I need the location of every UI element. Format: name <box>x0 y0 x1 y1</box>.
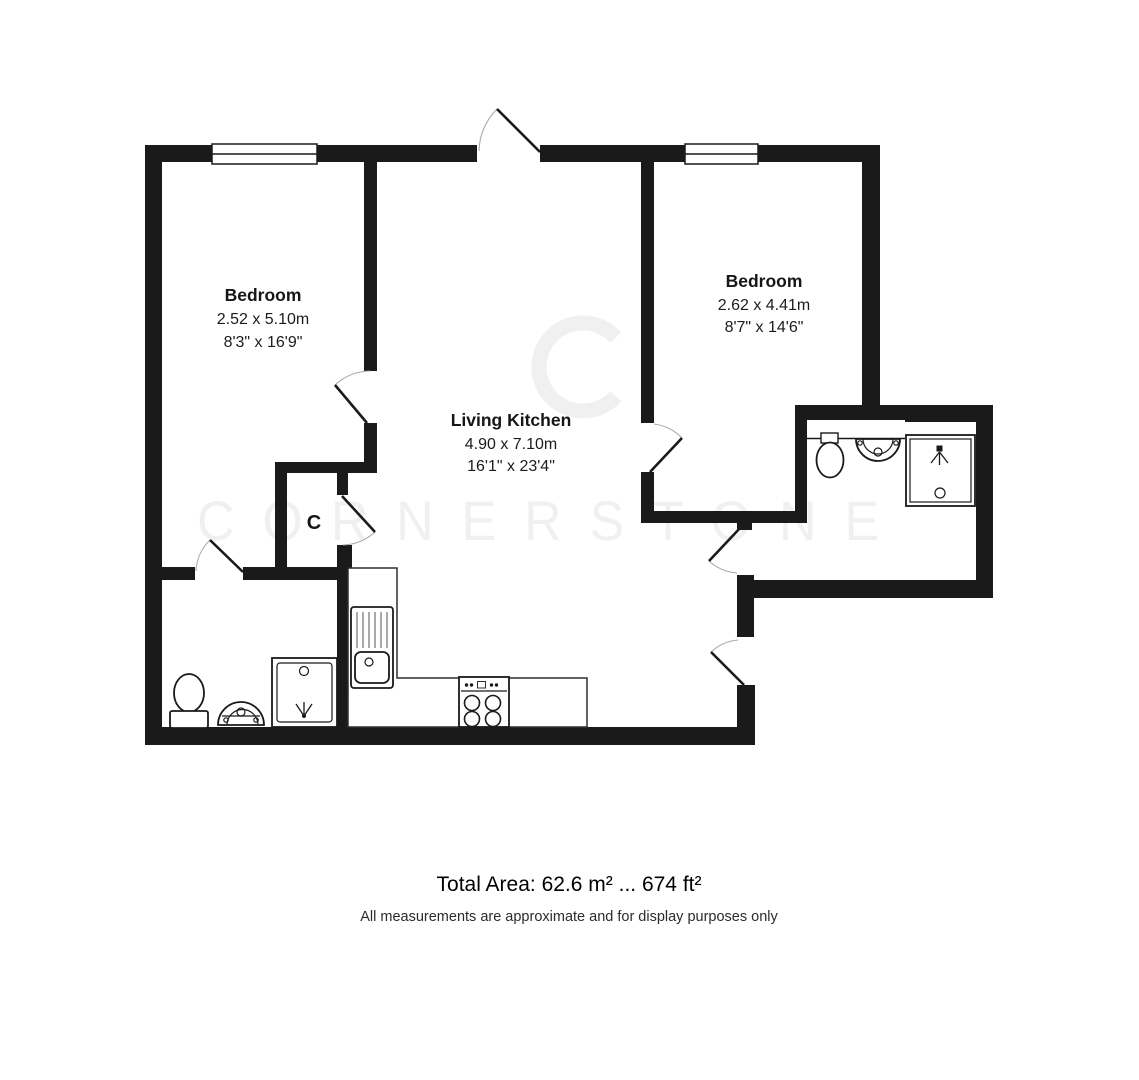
wall-closet-top <box>275 462 375 473</box>
total-area-text: Total Area: 62.6 m² ... 674 ft² <box>437 873 702 896</box>
wall-right-bedroom2 <box>862 145 880 407</box>
wall-ensuite-bottom <box>753 580 993 598</box>
wall-bed1-living-upper <box>364 162 377 371</box>
wall-hall-stub-lower <box>737 685 755 745</box>
window-bedroom1 <box>212 144 317 164</box>
hob-icon <box>459 677 509 727</box>
disclaimer-text: All measurements are approximate and for… <box>360 909 778 925</box>
wall-bathroom-top-right <box>243 567 348 580</box>
closet-label: C <box>307 512 321 534</box>
living-kitchen-metric: 4.90 x 7.10m <box>465 436 558 453</box>
wall-closet-left <box>275 462 287 578</box>
wall-ensuite-top <box>795 405 993 422</box>
kitchen-sink-icon <box>351 607 393 688</box>
ensuite-toilet-icon <box>817 433 844 478</box>
brand-logo-c-icon <box>539 323 616 411</box>
kitchen-fixtures <box>348 568 587 727</box>
ensuite-basin-icon <box>856 439 900 461</box>
shower-tray-icon <box>272 658 337 727</box>
bedroom1-imperial: 8'3" x 16'9" <box>224 334 303 351</box>
bedroom2-metric: 2.62 x 4.41m <box>718 297 811 314</box>
wall-bed2-living-upper <box>641 162 654 423</box>
bedroom2-imperial: 8'7" x 14'6" <box>725 319 804 336</box>
wall-closet-right-stub <box>337 473 348 495</box>
basin-icon <box>218 702 264 725</box>
floorplan-svg: CORNERSTONE <box>0 0 1139 1080</box>
doors <box>196 109 744 685</box>
bedroom1-door <box>335 371 370 423</box>
wall-ensuite-left <box>795 405 807 511</box>
floorplan-page: CORNERSTONE <box>0 0 1139 1080</box>
ensuite-shower-icon <box>906 435 975 506</box>
wall-bed2-bottom <box>641 511 807 523</box>
entry-door <box>479 109 540 152</box>
bedroom1-name: Bedroom <box>225 285 302 305</box>
wall-hall-stub-upper <box>737 575 754 637</box>
bedroom2-door <box>650 424 682 472</box>
footer: Total Area: 62.6 m² ... 674 ft² All meas… <box>360 873 778 925</box>
wall-left <box>145 145 162 745</box>
wall-bottom <box>145 727 755 745</box>
toilet-icon <box>170 674 208 728</box>
wall-bathroom-top-left <box>158 567 195 580</box>
hall-door-lower <box>711 640 744 685</box>
bathroom-fixtures <box>170 658 337 728</box>
bedroom2-name: Bedroom <box>726 271 803 291</box>
window-bedroom2 <box>685 144 758 164</box>
wall-ensuite-right <box>976 405 993 598</box>
bedroom1-metric: 2.52 x 5.10m <box>217 311 310 328</box>
living-kitchen-name: Living Kitchen <box>451 410 572 430</box>
living-kitchen-imperial: 16'1" x 23'4" <box>467 458 555 475</box>
